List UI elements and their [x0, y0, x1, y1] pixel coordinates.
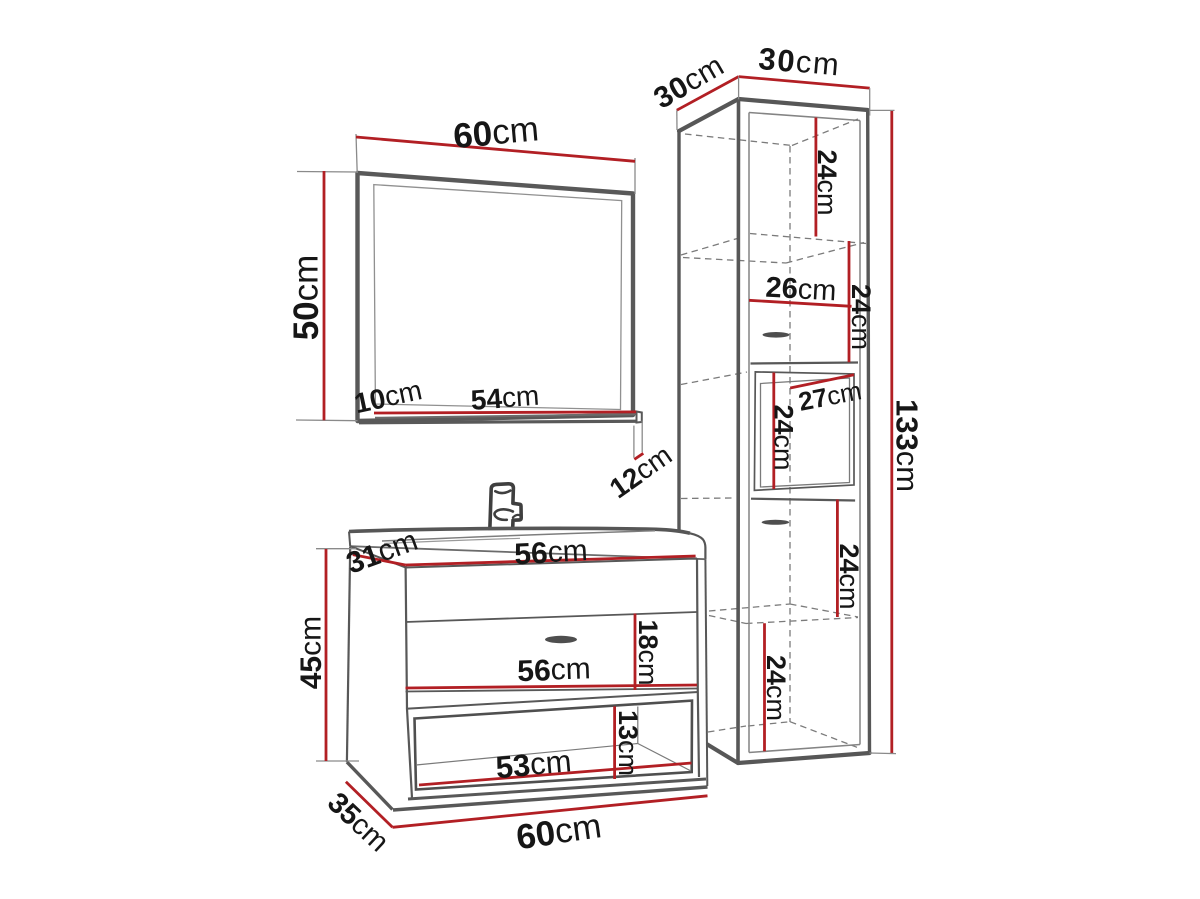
svg-text:24cm: 24cm — [769, 404, 799, 470]
svg-text:45cm: 45cm — [295, 616, 328, 689]
svg-text:54cm: 54cm — [470, 380, 540, 416]
svg-text:60cm: 60cm — [452, 109, 541, 155]
svg-text:18cm: 18cm — [633, 619, 663, 685]
svg-text:56cm: 56cm — [517, 652, 591, 688]
svg-text:24cm: 24cm — [812, 149, 842, 215]
svg-text:26cm: 26cm — [765, 272, 838, 308]
svg-text:24cm: 24cm — [834, 543, 864, 609]
svg-text:56cm: 56cm — [513, 534, 588, 571]
svg-text:53cm: 53cm — [494, 743, 573, 784]
svg-text:24cm: 24cm — [761, 655, 791, 721]
svg-text:133cm: 133cm — [890, 399, 925, 492]
svg-text:13cm: 13cm — [613, 710, 643, 776]
svg-text:50cm: 50cm — [287, 255, 326, 341]
svg-text:30cm: 30cm — [757, 41, 842, 83]
svg-text:24cm: 24cm — [846, 284, 876, 350]
